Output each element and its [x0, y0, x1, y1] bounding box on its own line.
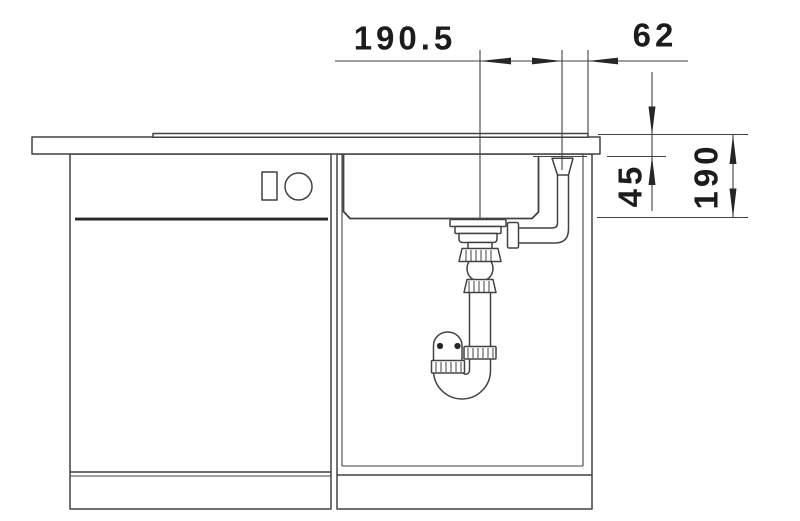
coupling-nut-1 [459, 249, 501, 262]
dimension-arrow [730, 189, 737, 218]
countertop [32, 134, 600, 155]
strainer-body-upper [455, 227, 501, 234]
technical-drawing: 190.5 62 45 190 [0, 0, 800, 521]
dimension-arrow [480, 58, 511, 65]
cabinet-left-body [70, 154, 331, 509]
strainer-body-lower [459, 234, 497, 243]
dimension-label-overflow-drop: 45 [614, 163, 647, 208]
countertop-slab [32, 137, 600, 154]
dimension-arrow [730, 135, 737, 164]
coupling-nut-3 [464, 347, 496, 360]
dimension-label-overflow-edge: 62 [633, 19, 678, 52]
dimension-arrow [588, 58, 618, 65]
cabinet-right-body [337, 154, 592, 509]
dimension-arrow [532, 58, 562, 65]
trap-screw-left [437, 343, 443, 349]
base-cabinet-left [70, 154, 331, 509]
dimension-arrow [649, 157, 656, 186]
strainer-flange [450, 220, 506, 227]
base-cabinet-right [337, 154, 592, 509]
dimension-label-bowl-depth: 190 [690, 142, 723, 209]
sink-section-linework [0, 0, 800, 521]
dimension-label-drain-offset: 190.5 [354, 22, 457, 55]
dimension-arrow [649, 107, 656, 135]
overflow-coupling-nut [508, 223, 519, 249]
trap-screw-right [454, 343, 460, 349]
drawer-gap [75, 218, 328, 221]
sink-rim [153, 134, 588, 138]
